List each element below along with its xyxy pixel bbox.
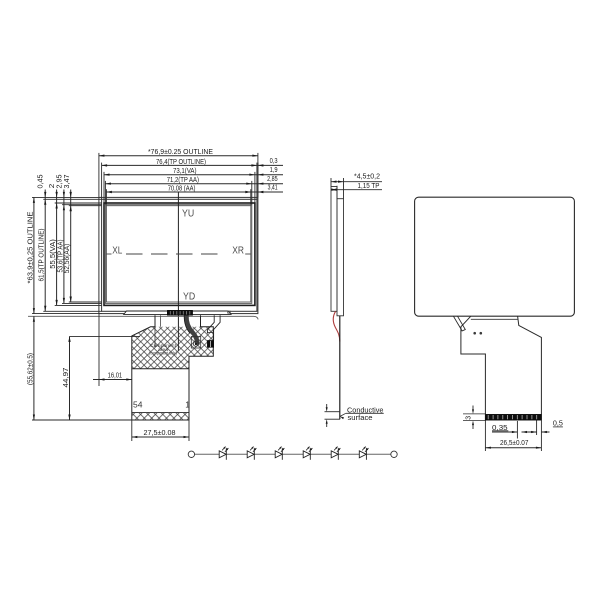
- svg-text:(component side): (component side): [149, 350, 177, 355]
- svg-text:1: 1: [185, 399, 190, 409]
- svg-text:2,85: 2,85: [267, 176, 278, 183]
- svg-text:52,56(AA): 52,56(AA): [64, 244, 71, 274]
- svg-text:XL: XL: [112, 245, 122, 257]
- svg-text:*63,9±0,25 OUTLINE: *63,9±0,25 OUTLINE: [27, 211, 34, 283]
- svg-text:3,47: 3,47: [64, 174, 71, 188]
- svg-text:*76,9±0.25 OUTLINE: *76,9±0.25 OUTLINE: [148, 149, 213, 156]
- svg-text:70,08 (AA): 70,08 (AA): [168, 185, 196, 192]
- svg-text:16,01: 16,01: [108, 373, 123, 380]
- svg-text:3,41: 3,41: [268, 185, 278, 192]
- svg-text:55,5(VA): 55,5(VA): [50, 239, 57, 269]
- svg-text:2: 2: [49, 184, 56, 189]
- svg-text:2,95: 2,95: [57, 174, 64, 188]
- svg-text:(55,62±0.5): (55,62±0.5): [27, 353, 34, 385]
- svg-text:0,3: 0,3: [270, 158, 278, 165]
- svg-text:27,5±0.08: 27,5±0.08: [144, 430, 176, 437]
- svg-text:73,1(VA): 73,1(VA): [173, 168, 197, 175]
- svg-text:surface: surface: [348, 415, 373, 422]
- svg-text:71,2(TP AA): 71,2(TP AA): [167, 177, 199, 184]
- svg-text:44,97: 44,97: [63, 367, 70, 387]
- svg-text:54: 54: [133, 399, 143, 409]
- svg-text:0,45: 0,45: [38, 174, 45, 188]
- svg-text:3: 3: [466, 416, 473, 420]
- svg-text:YU: YU: [182, 207, 194, 219]
- svg-text:26,5±0.07: 26,5±0.07: [500, 440, 529, 447]
- svg-text:*4,5±0,2: *4,5±0,2: [354, 174, 380, 181]
- svg-text:1,15 TP: 1,15 TP: [358, 183, 380, 190]
- svg-text:61,5(TP OUTLINE): 61,5(TP OUTLINE): [39, 229, 46, 282]
- svg-text:YD: YD: [183, 290, 196, 302]
- svg-text:XR: XR: [232, 245, 244, 257]
- svg-text:1,9: 1,9: [270, 167, 278, 174]
- svg-text:76,4(TP OUTLINE): 76,4(TP OUTLINE): [156, 159, 206, 166]
